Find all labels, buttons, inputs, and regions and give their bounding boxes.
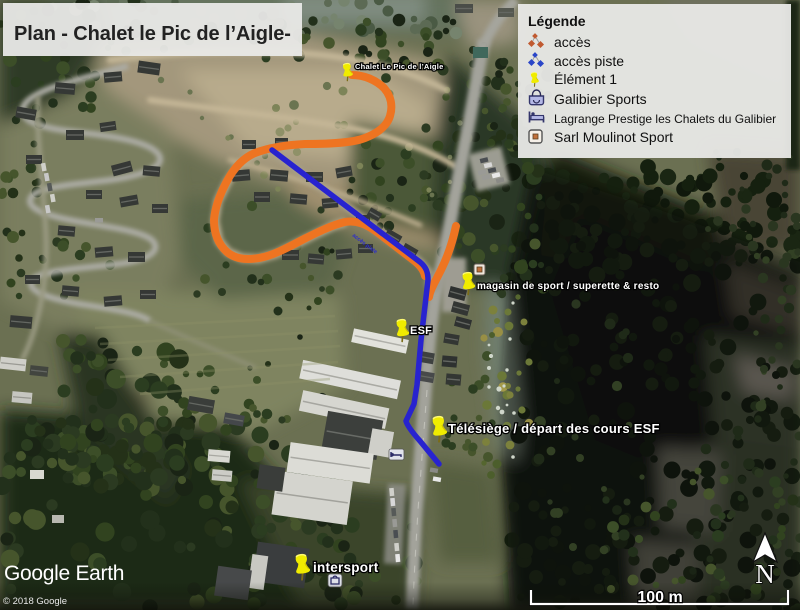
svg-text:Galibier Sports: Galibier Sports [554,91,647,107]
svg-text:N: N [755,559,775,589]
svg-text:accès: accès [554,34,591,50]
svg-text:Chalet Le Pic de l’Aigle: Chalet Le Pic de l’Aigle [355,62,444,71]
svg-text:Lagrange Prestige les Chalets: Lagrange Prestige les Chalets du Galibie… [554,112,776,126]
svg-text:© 2018 Google: © 2018 Google [3,596,67,607]
svg-text:magasin de sport / superette &: magasin de sport / superette & resto [477,281,659,292]
svg-text:Télésiège / départ des cours E: Télésiège / départ des cours ESF [448,421,660,436]
svg-text:ESF: ESF [410,325,432,337]
svg-text:Plan - Chalet le Pic de l’Aigl: Plan - Chalet le Pic de l’Aigle- [14,23,291,45]
svg-text:intersport: intersport [313,560,379,575]
svg-text:100 m: 100 m [637,589,682,606]
svg-text:Élément 1: Élément 1 [554,71,617,87]
svg-text:accès piste: accès piste [554,53,624,69]
svg-text:Sarl Moulinot Sport: Sarl Moulinot Sport [554,129,673,145]
svg-text:Légende: Légende [528,13,586,29]
svg-text:Google Earth: Google Earth [4,562,124,585]
